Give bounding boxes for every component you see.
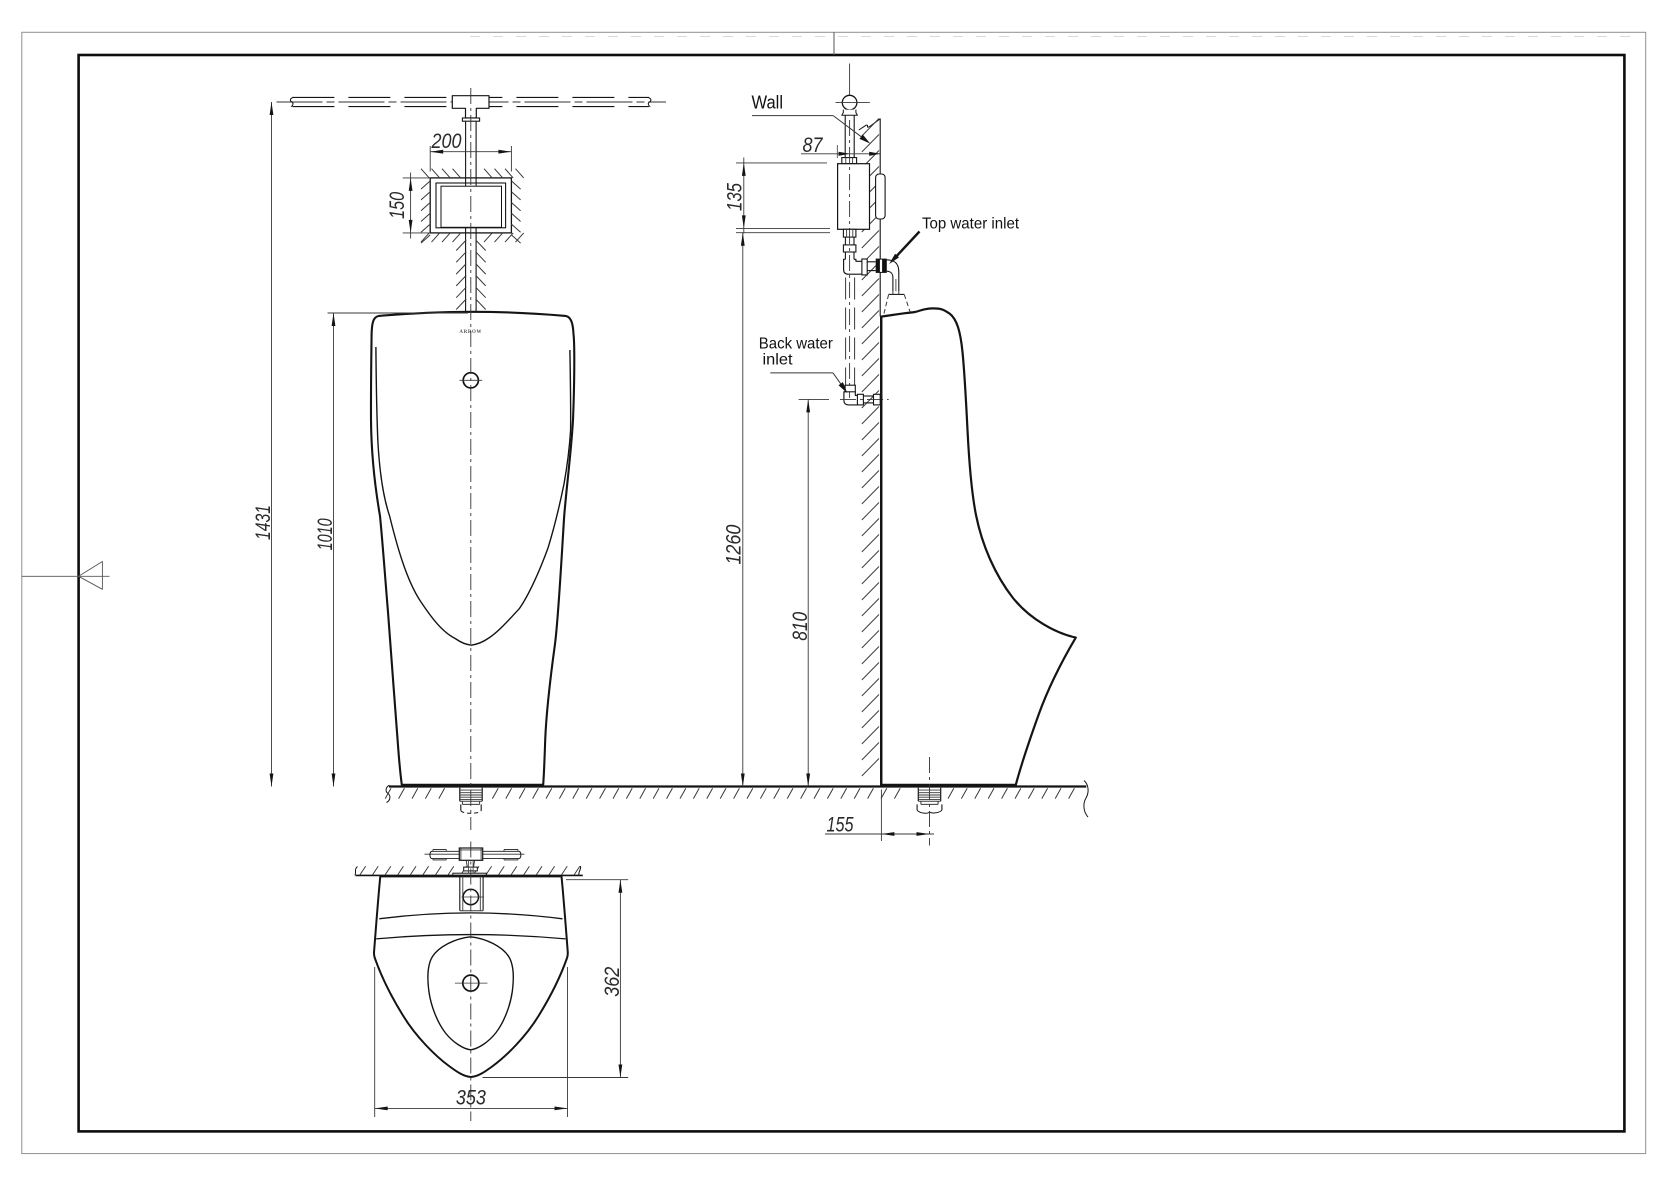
svg-text:135: 135 <box>723 183 746 211</box>
svg-text:362: 362 <box>601 967 624 997</box>
svg-text:1010: 1010 <box>314 518 337 550</box>
svg-text:Back water: Back water <box>759 336 834 353</box>
svg-text:Top water inlet: Top water inlet <box>922 216 1020 233</box>
svg-text:353: 353 <box>456 1087 486 1110</box>
svg-text:150: 150 <box>386 192 409 219</box>
svg-text:200: 200 <box>431 130 462 153</box>
svg-text:Wall: Wall <box>752 93 784 113</box>
svg-text:810: 810 <box>789 612 812 641</box>
svg-text:1260: 1260 <box>723 524 746 564</box>
svg-text:1431: 1431 <box>252 505 275 540</box>
svg-text:inlet: inlet <box>763 352 794 369</box>
svg-text:155: 155 <box>827 813 854 836</box>
